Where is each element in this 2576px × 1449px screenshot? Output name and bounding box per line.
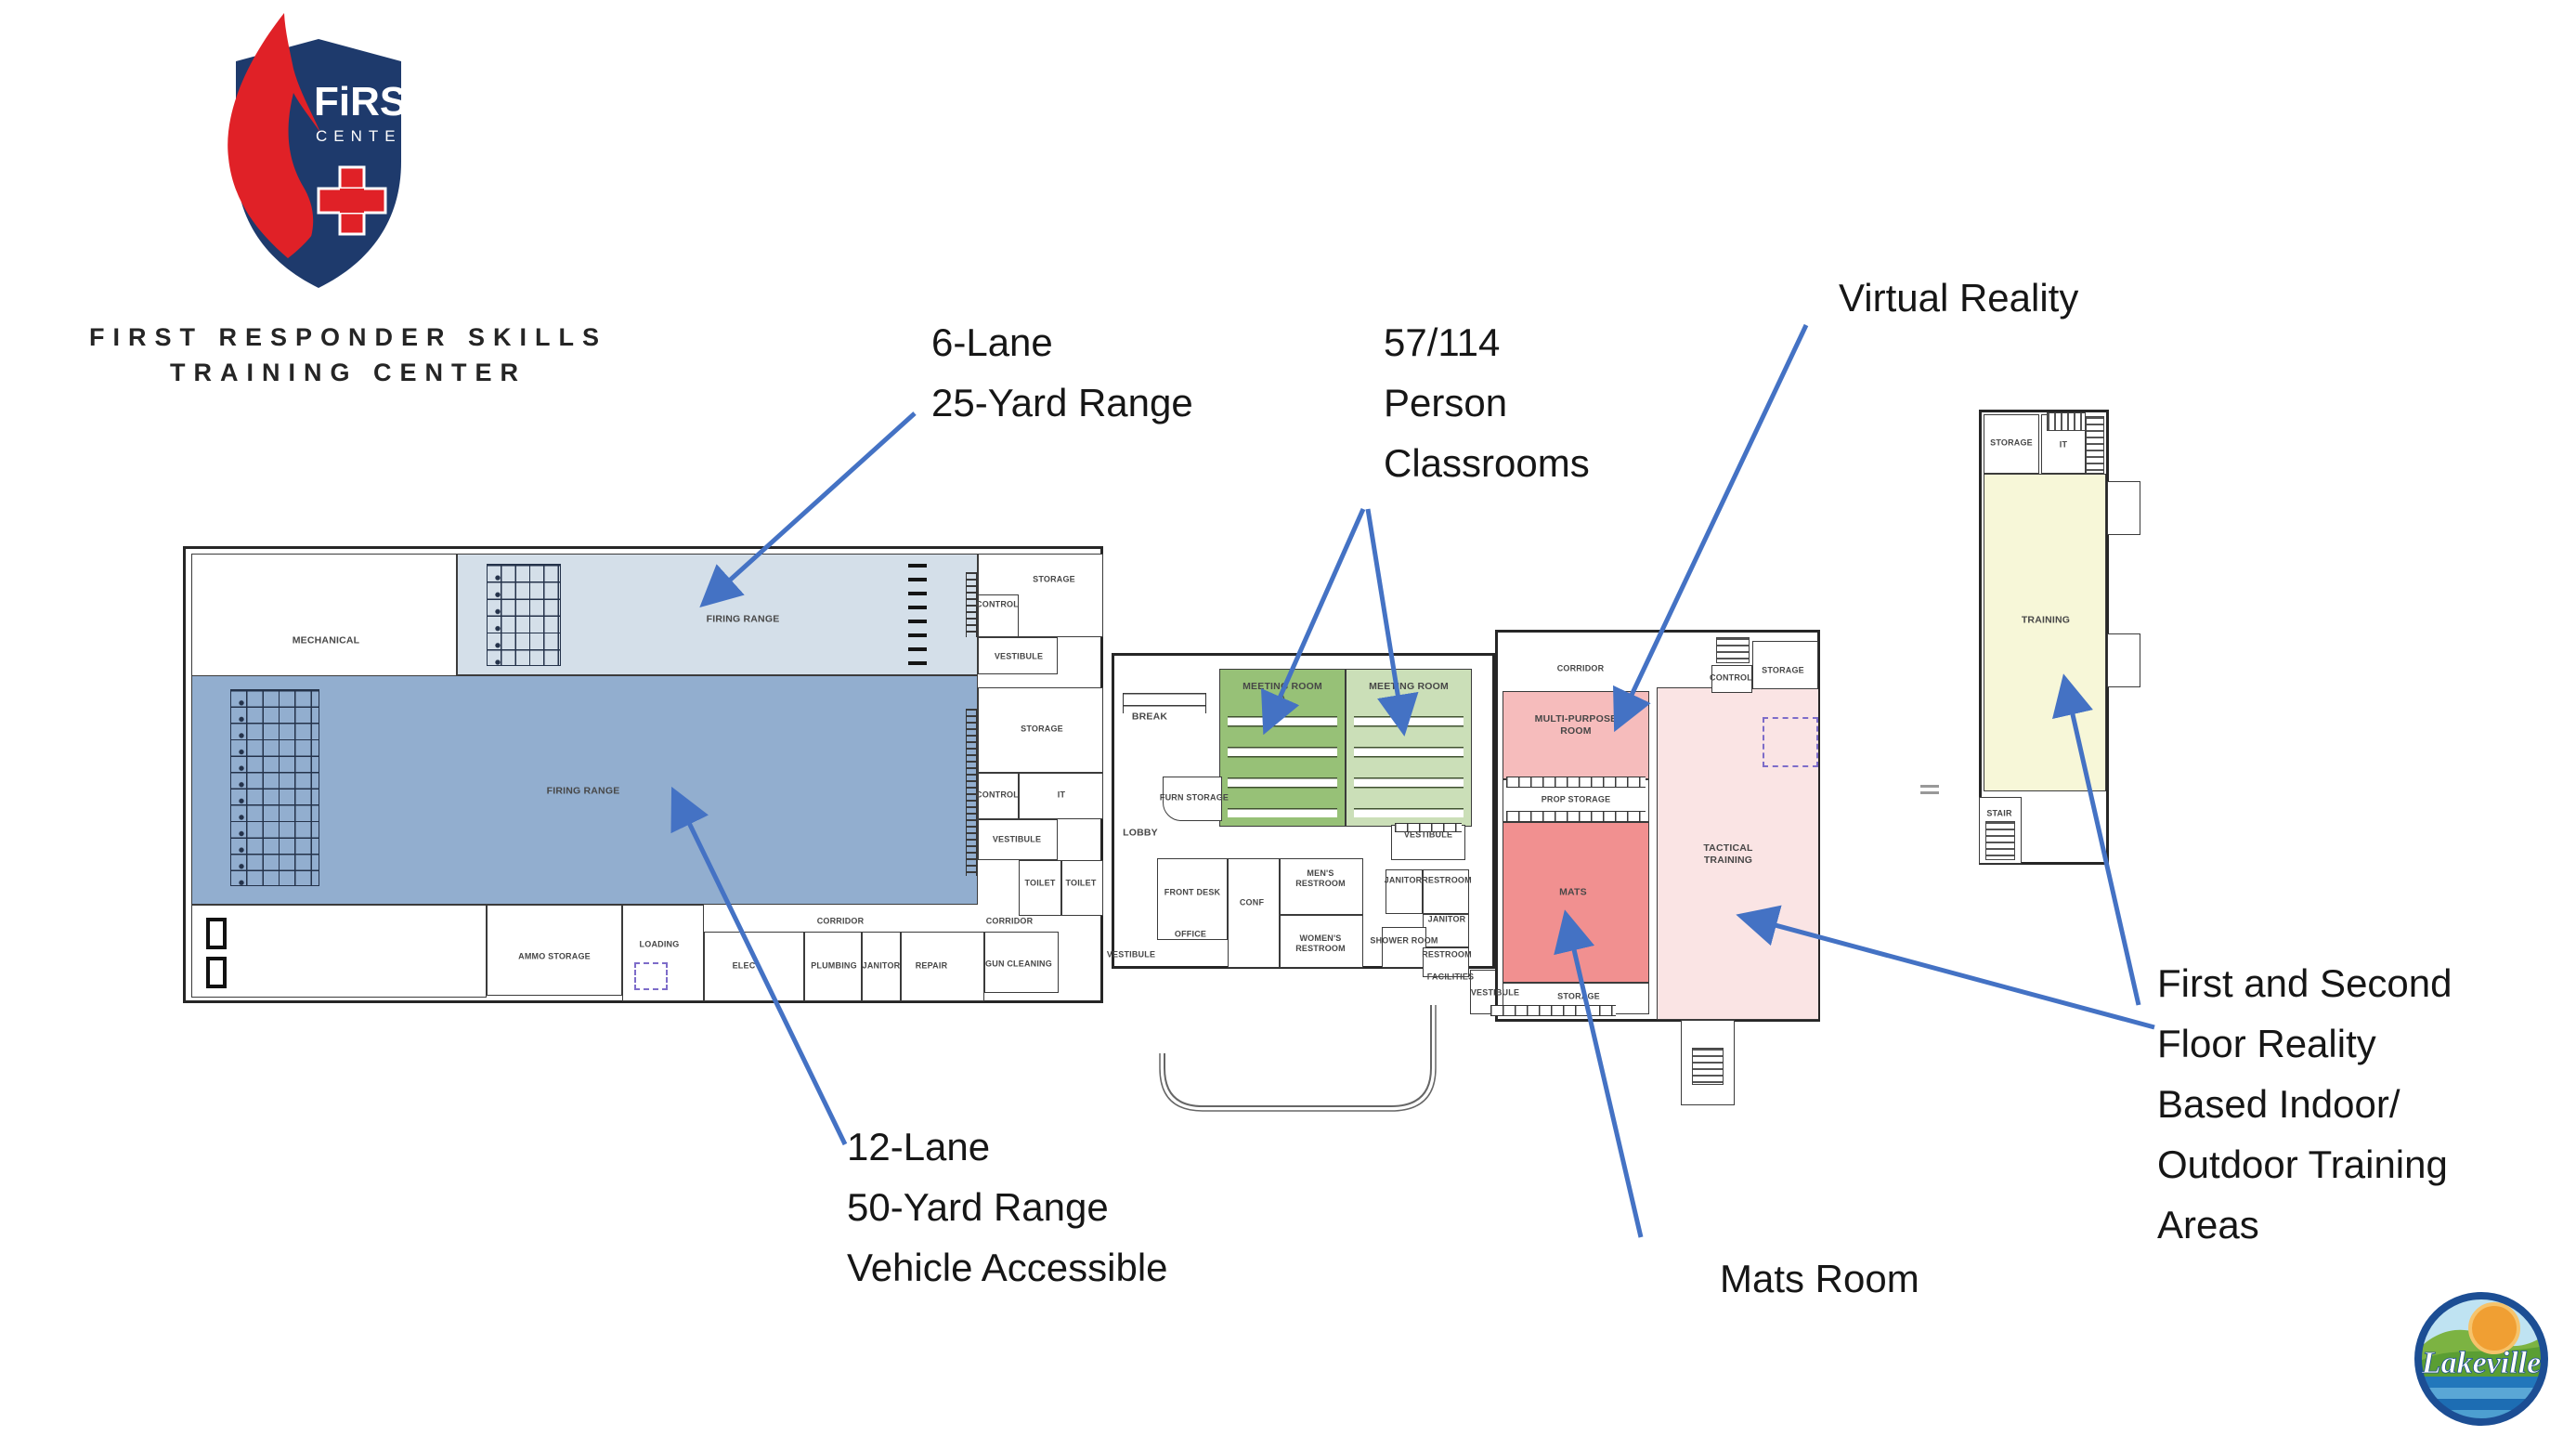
room-label-mats: MATS	[1559, 886, 1587, 898]
annotation-virtual-reality: Virtual Reality	[1839, 268, 2078, 328]
first-center-shield-logo: FiRST CENTER	[204, 11, 436, 312]
room-label-firing-range-6: FIRING RANGE	[707, 613, 780, 625]
match-line-mark-1	[1920, 785, 1939, 788]
match-line-mark-2	[1920, 791, 1939, 794]
room-label-vestibule-d: VESTIBULE	[1107, 949, 1155, 959]
future-opening-dashed	[1763, 717, 1818, 767]
annotation-mats-room: Mats Room	[1720, 1248, 1919, 1309]
room-label-storage-c: STORAGE	[1762, 665, 1804, 675]
room-label-vestibule-c: VESTIBULE	[1404, 829, 1452, 840]
safety-room	[191, 905, 487, 998]
porch-bump-2	[2107, 633, 2140, 687]
room-label-tactical-training: TACTICALTRAINING	[1703, 842, 1752, 867]
room-label-elec: ELEC	[733, 960, 756, 971]
room-label-mens-restroom: MEN'SRESTROOM	[1295, 868, 1346, 890]
room-label-meeting-a: MEETING ROOMA	[1242, 681, 1322, 705]
room-label-break: BREAK	[1132, 711, 1167, 723]
slide-canvas: { "logo": { "shield_top": "FiRST", "shie…	[0, 0, 2576, 1449]
lane-grid-6	[487, 564, 561, 666]
room-label-corridor-2: CORRIDOR	[986, 916, 1034, 926]
shield-wordmark: FiRST	[314, 79, 432, 124]
room-label-conf: CONF	[1240, 897, 1264, 907]
org-title-line1: FIRST RESPONDER SKILLS	[51, 325, 645, 350]
mechanical-room	[191, 554, 457, 677]
equipment-box-1	[206, 918, 227, 949]
prop-storage-window-s	[1506, 811, 1646, 822]
room-label-facilities: FACILITIES	[1427, 972, 1475, 982]
room-label-vestibule-a: VESTIBULE	[995, 651, 1043, 661]
room-label-control-a: CONTROL	[976, 599, 1019, 609]
annotation-classrooms: 57/114 Person Classrooms	[1384, 312, 1590, 493]
room-label-stair: STAIR	[1986, 808, 2011, 818]
training-zone	[1984, 474, 2106, 791]
room-label-corridor-3: CORRIDOR	[1557, 663, 1605, 673]
room-label-janitor-2: JANITOR	[1385, 875, 1423, 885]
room-label-multi-purpose: MULTI-PURPOSEROOM	[1535, 713, 1618, 738]
room-label-vestibule-e: VESTIBULE	[1471, 987, 1519, 998]
room-label-front-desk: FRONT DESK	[1164, 887, 1221, 897]
lane-grid-12	[230, 689, 319, 886]
room-label-lobby: LOBBY	[1123, 827, 1158, 839]
room-label-restroom-2: RESTROOM	[1422, 949, 1472, 959]
room-label-janitor-3: JANITOR	[1428, 914, 1466, 924]
front-desk-room	[1157, 858, 1228, 940]
room-label-gun-cleaning: GUN CLEANING	[985, 959, 1052, 969]
annotation-6lane-range: 6-Lane 25-Yard Range	[931, 312, 1193, 433]
stairs-south-icon	[1692, 1048, 1724, 1085]
room-label-loading: LOADING	[640, 939, 680, 949]
stairs-top-icon	[1716, 637, 1750, 663]
shower-room	[1382, 927, 1426, 968]
room-label-it-a: IT	[1058, 790, 1065, 800]
conf-room	[1228, 858, 1280, 968]
classroom-seating-a	[1228, 704, 1337, 817]
room-label-training: TRAINING	[2022, 614, 2070, 626]
prop-storage-window-n	[1506, 777, 1646, 788]
annotation-training-areas: First and Second Floor Reality Based Ind…	[2157, 953, 2452, 1255]
room-label-control-b: CONTROL	[976, 790, 1019, 800]
ammo-storage-room	[487, 905, 622, 996]
shield-subtext: CENTER	[316, 127, 420, 145]
room-label-toilet-1: TOILET	[1024, 878, 1055, 888]
stairs-ne-icon	[2047, 412, 2086, 431]
room-label-meeting-b: MEETING ROOMB	[1369, 681, 1449, 705]
room-label-womens-restroom: WOMEN'SRESTROOM	[1295, 933, 1346, 955]
room-label-mechanical: MECHANICAL	[293, 634, 360, 646]
room-label-vestibule-b: VESTIBULE	[993, 834, 1041, 844]
room-label-it-b: IT	[2060, 439, 2067, 450]
room-label-storage-b: STORAGE	[1021, 724, 1063, 734]
org-title-line2: TRAINING CENTER	[51, 360, 645, 385]
room-label-repair: REPAIR	[916, 960, 948, 971]
room-label-furn-storage: FURN STORAGE	[1160, 792, 1229, 803]
room-label-office: OFFICE	[1175, 929, 1206, 939]
room-label-storage-d: STORAGE	[1557, 991, 1600, 1001]
room-label-storage-a: STORAGE	[1033, 574, 1075, 584]
room-label-plumbing: PLUMBING	[811, 960, 857, 971]
room-label-ammo-storage: AMMO STORAGE	[518, 951, 591, 961]
room-label-control-c: CONTROL	[1710, 672, 1752, 683]
room-label-toilet-2: TOILET	[1065, 878, 1096, 888]
stairs-e-icon	[2086, 416, 2104, 474]
storage-d-window	[1490, 1005, 1616, 1016]
room-label-firing-range-12: FIRING RANGE	[547, 785, 620, 797]
annotation-12lane-range: 12-Lane 50-Yard Range Vehicle Accessible	[847, 1116, 1168, 1298]
lakeville-wordmark: Lakeville	[2421, 1346, 2541, 1380]
room-label-restroom-1: RESTROOM	[1422, 875, 1472, 885]
room-label-prop-storage: PROP STORAGE	[1542, 794, 1611, 804]
room-label-shower-room: SHOWER ROOM	[1370, 935, 1438, 946]
mats-zone	[1503, 822, 1649, 983]
stairs-sw-icon	[1985, 821, 2015, 860]
room-label-storage-e: STORAGE	[1990, 437, 2033, 448]
porch-bump-1	[2107, 481, 2140, 535]
loading-dashed-area	[634, 962, 668, 990]
equipment-box-2	[206, 957, 227, 988]
room-label-corridor-1: CORRIDOR	[817, 916, 865, 926]
classroom-seating-b	[1354, 704, 1464, 817]
lakeville-city-logo: Lakeville	[2411, 1287, 2552, 1430]
room-label-janitor-1: JANITOR	[863, 960, 901, 971]
target-marks	[908, 564, 927, 668]
